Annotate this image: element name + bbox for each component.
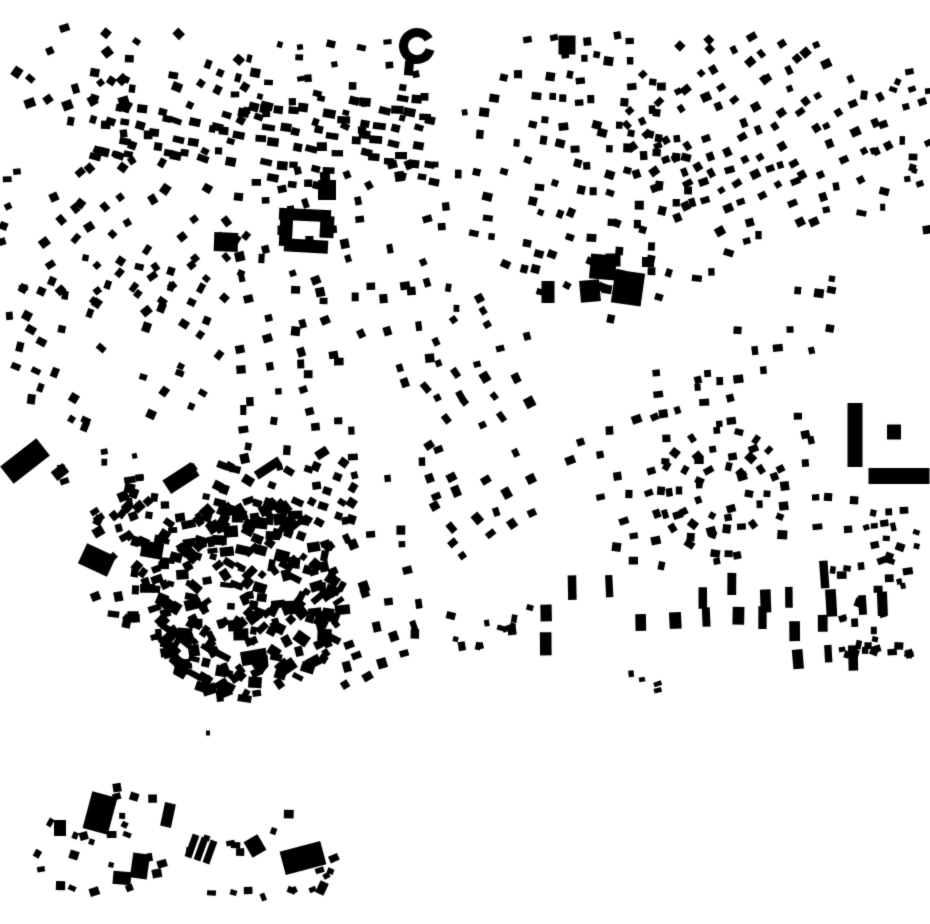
- building-footprint-map: [0, 0, 930, 924]
- map-canvas: [0, 0, 930, 924]
